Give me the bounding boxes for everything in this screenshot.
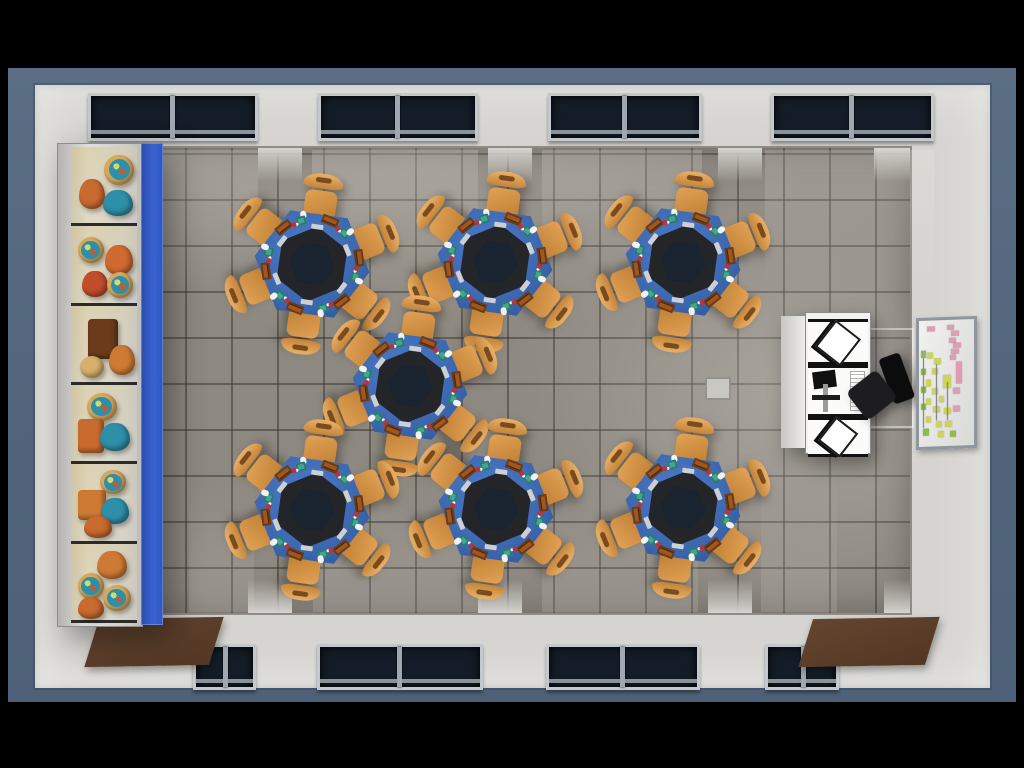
sticky-note [933, 406, 940, 413]
chair-handle-slot [610, 202, 624, 218]
window-sill [768, 679, 836, 683]
shelf-blue-panel [141, 143, 163, 625]
window-sill [196, 679, 253, 683]
chair-handle-slot [228, 533, 239, 550]
sticky-note [944, 408, 951, 415]
sticky-note [953, 388, 960, 395]
sticky-note [950, 355, 957, 360]
wall-pillar [874, 148, 910, 182]
shelf-item-toy [79, 179, 105, 209]
sticky-note [927, 352, 934, 359]
sticky-note [945, 421, 952, 428]
chair-handle-slot [292, 344, 309, 351]
sticky-note [951, 349, 959, 354]
window-bottom [546, 644, 700, 690]
chair-handle-slot [686, 421, 703, 428]
concept-map-board [916, 316, 977, 450]
shelf-compartment [71, 147, 137, 226]
chair-back [280, 582, 322, 602]
chair-handle-slot [756, 222, 767, 239]
shelf-compartment [71, 226, 137, 305]
sticky-note [953, 342, 961, 347]
chair-handle-slot [372, 554, 386, 570]
hex-computer-table [583, 408, 783, 608]
whiteboard-slate-icon [815, 320, 861, 366]
hex-computer-table [212, 410, 412, 610]
chair-handle-slot [498, 175, 515, 182]
sticky-note [936, 421, 943, 428]
connector-line [947, 382, 948, 420]
chair-handle-slot [423, 449, 437, 465]
window-sill [320, 679, 480, 683]
shelf-item-toy [82, 271, 108, 297]
shelf-compartment [71, 385, 137, 464]
chair-back [464, 581, 506, 601]
chair-handle-slot [385, 470, 396, 487]
shelf-compartment [71, 544, 137, 623]
sticky-note [939, 396, 945, 402]
chair-handle-slot [610, 448, 624, 464]
shelf-item-toy [103, 190, 133, 216]
chair-handle-slot [422, 202, 436, 218]
shelf-item-toy [80, 356, 104, 378]
sticky-note [926, 399, 932, 405]
chair-handle-slot [743, 552, 757, 568]
chair-handle-slot [686, 175, 703, 182]
window-sill [551, 130, 699, 134]
chair-handle-slot [412, 532, 423, 549]
chair-handle-slot [569, 469, 580, 486]
desk-side-return [781, 316, 807, 448]
chair-handle-slot [568, 222, 579, 239]
desk-panel-bottom [808, 417, 868, 457]
chair-handle-slot [292, 590, 309, 597]
chair-handle-slot [555, 306, 569, 322]
window-sill [321, 130, 475, 134]
chair-back [303, 171, 345, 191]
shelf-compartment [71, 306, 137, 385]
chair-handle-slot [599, 285, 610, 302]
shelf-item-toy [97, 551, 127, 579]
connector-line [923, 357, 924, 428]
shelf-item-globe [107, 272, 133, 298]
chair-back [487, 416, 529, 436]
storage-shelf [57, 143, 163, 625]
shelf-item-toy [105, 245, 133, 275]
shelf-item-globe [78, 573, 104, 599]
desk-panel-top [808, 319, 868, 365]
chair-handle-slot [556, 553, 570, 569]
board-notes [919, 319, 974, 321]
chair-handle-slot [499, 422, 516, 429]
chair-back [651, 580, 693, 600]
chair-handle-slot [476, 589, 493, 596]
shelf-item-globe [87, 393, 117, 421]
door-mat [798, 617, 939, 667]
chair-back [303, 417, 345, 437]
connector-line [936, 364, 937, 419]
sticky-note [923, 429, 929, 435]
window-sill [549, 679, 697, 683]
wall-pillar [884, 579, 910, 613]
floor-outlet [705, 377, 731, 400]
window-bottom [317, 644, 483, 690]
classroom-render [0, 0, 1024, 768]
chair-handle-slot [315, 177, 332, 184]
chair-handle-slot [663, 588, 680, 595]
shelf-item-toy [109, 345, 135, 375]
window-top [771, 93, 934, 141]
shelf-item-globe [104, 155, 134, 185]
chair-back [651, 334, 693, 354]
sticky-note [927, 327, 936, 332]
sticky-note [953, 405, 960, 412]
chair-back [401, 293, 443, 313]
shelf-item-toy [78, 597, 104, 619]
window-sill [91, 130, 255, 134]
chair-handle-slot [756, 468, 767, 485]
chair-handle-slot [413, 299, 430, 306]
hex-computer-table [583, 162, 783, 362]
chair-handle-slot [599, 531, 610, 548]
chair-back [486, 169, 528, 189]
shelf-item-globe [78, 237, 104, 263]
shelf-item-toy [84, 516, 112, 538]
sticky-note [951, 331, 959, 336]
sticky-note [950, 431, 957, 438]
chair-handle-slot [663, 342, 680, 349]
chair-handle-slot [315, 423, 332, 430]
window-sill [774, 130, 931, 134]
sticky-note [938, 431, 945, 438]
sticky-note [926, 380, 932, 386]
chair-handle-slot [239, 450, 253, 466]
chair-back [674, 415, 716, 435]
sticky-note [956, 361, 962, 384]
window-top [318, 93, 478, 141]
sticky-note [926, 416, 932, 422]
chair-handle-slot [337, 326, 351, 342]
window-top [548, 93, 702, 141]
chair-back [674, 169, 716, 189]
shelf-item-toy [100, 423, 130, 451]
shelf-item-globe [103, 585, 131, 611]
window-top [88, 93, 258, 141]
chair-handle-slot [743, 306, 757, 322]
sticky-note [947, 325, 955, 330]
monitor-arm [812, 395, 840, 400]
whiteboard-slate-icon [818, 417, 859, 458]
chair-handle-slot [228, 287, 239, 304]
hex-computer-table [396, 409, 596, 609]
shelf-compartment [71, 464, 137, 543]
chair-handle-slot [483, 346, 494, 363]
chair-handle-slot [239, 204, 253, 220]
